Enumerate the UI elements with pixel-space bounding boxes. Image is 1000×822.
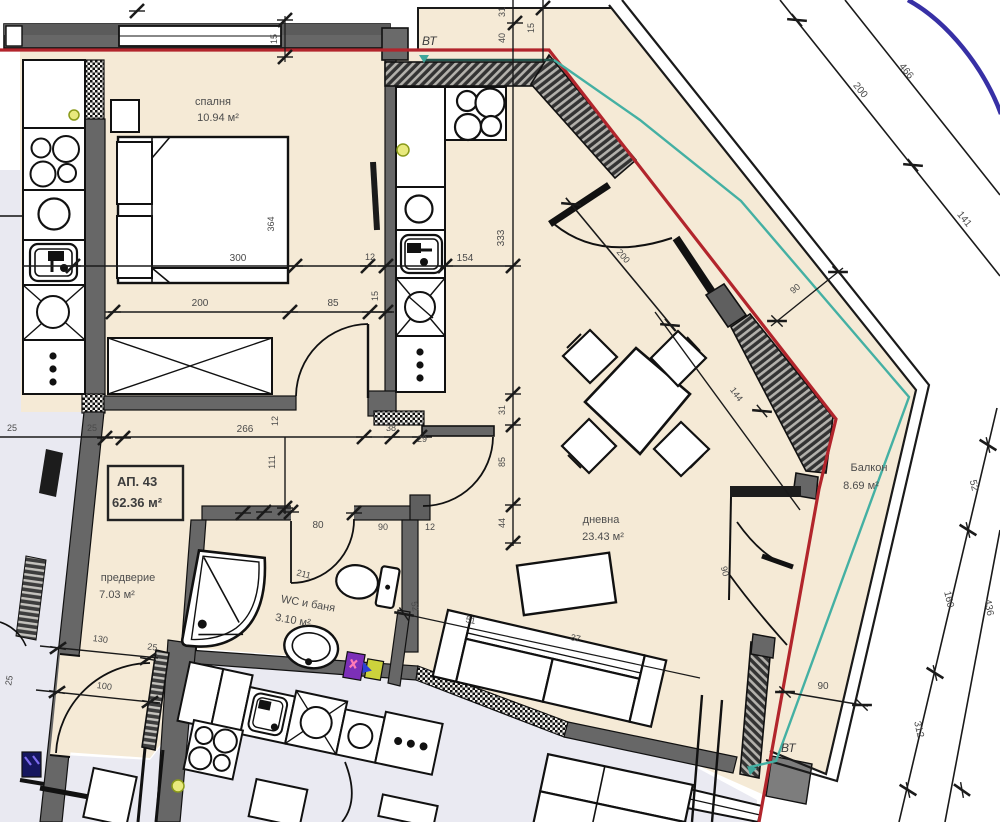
svg-text:ВТ: ВТ <box>781 741 797 755</box>
svg-text:85: 85 <box>327 298 339 309</box>
svg-text:40: 40 <box>497 33 507 43</box>
svg-text:10.94 м²: 10.94 м² <box>197 112 239 124</box>
svg-text:ВТ: ВТ <box>422 34 438 48</box>
svg-text:29: 29 <box>417 434 427 444</box>
svg-text:364: 364 <box>266 216 276 231</box>
svg-text:52: 52 <box>409 600 421 612</box>
svg-text:200: 200 <box>192 298 209 309</box>
svg-text:80: 80 <box>312 520 324 531</box>
svg-text:12: 12 <box>365 252 375 262</box>
svg-text:АП. 43: АП. 43 <box>117 474 157 489</box>
svg-text:23.43 м²: 23.43 м² <box>582 531 624 543</box>
svg-text:Балкон: Балкон <box>851 462 888 474</box>
svg-text:154: 154 <box>457 253 474 264</box>
svg-text:15: 15 <box>526 23 536 33</box>
svg-text:дневна: дневна <box>583 514 621 526</box>
svg-text:51: 51 <box>465 614 477 626</box>
svg-text:15: 15 <box>370 291 380 301</box>
svg-text:7.03 м²: 7.03 м² <box>99 589 135 601</box>
svg-text:37: 37 <box>570 632 582 644</box>
svg-text:25: 25 <box>3 675 15 687</box>
svg-text:62.36 м²: 62.36 м² <box>112 495 163 510</box>
svg-text:15: 15 <box>269 34 279 44</box>
svg-text:12: 12 <box>425 522 435 532</box>
svg-text:предверие: предверие <box>101 572 156 584</box>
svg-text:44: 44 <box>497 518 507 528</box>
svg-text:266: 266 <box>237 424 254 435</box>
svg-text:25: 25 <box>147 641 158 652</box>
svg-text:90: 90 <box>378 522 388 532</box>
svg-text:333: 333 <box>496 229 507 246</box>
svg-text:25: 25 <box>7 423 17 433</box>
svg-text:90: 90 <box>817 681 829 692</box>
svg-text:12: 12 <box>270 416 280 426</box>
svg-text:38: 38 <box>386 423 396 433</box>
svg-text:300: 300 <box>230 253 247 264</box>
svg-text:31: 31 <box>497 7 507 17</box>
svg-text:31: 31 <box>497 405 507 415</box>
svg-text:111: 111 <box>267 455 277 469</box>
svg-text:100: 100 <box>96 680 112 692</box>
svg-text:25: 25 <box>87 423 97 433</box>
svg-text:8.69 м²: 8.69 м² <box>843 480 879 492</box>
svg-text:130: 130 <box>92 633 108 645</box>
svg-text:спалня: спалня <box>195 96 231 108</box>
svg-text:85: 85 <box>497 457 507 467</box>
